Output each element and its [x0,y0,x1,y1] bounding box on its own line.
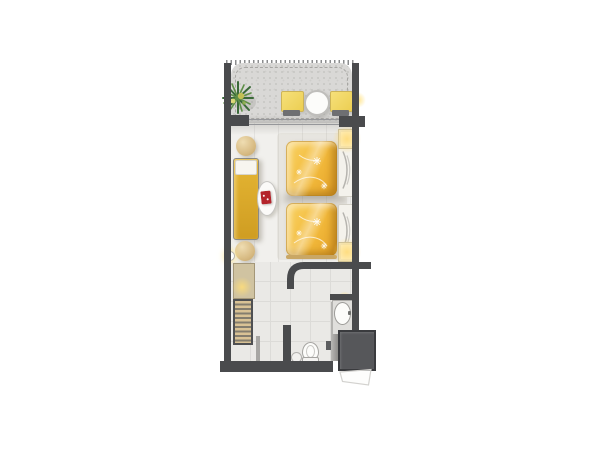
bed-duvet [286,203,337,256]
service-shaft [338,330,376,371]
dresser-with-lamp [233,263,255,299]
wardrobe [233,299,253,345]
floor-plan [0,0,600,450]
entry-door-leaf [256,336,260,361]
faucet [348,311,351,315]
wall-pier-left [224,115,249,126]
patio-chair-frame [283,110,300,116]
ottoman-2 [235,241,255,261]
round-patio-table [304,90,330,116]
wall-right [352,63,359,332]
patio-chair-1 [281,91,304,112]
towel-rail [326,341,331,350]
vanity-alcove-wall [330,294,352,300]
entry-door-swing [340,370,371,386]
sliding-glass-door [249,119,339,125]
bathroom-wall-segment [283,325,291,361]
red-book [260,191,271,205]
floral-pattern [286,141,337,196]
wall-bottom [220,361,333,372]
wall-left [224,63,231,372]
chaise-pillow [235,160,257,175]
ottoman-1 [236,136,256,156]
shaft-shadow [331,334,338,361]
floral-pattern [286,203,337,256]
bed-duvet [286,141,337,196]
bed-frame-edge [286,255,337,259]
wall-pier-right [339,116,365,127]
